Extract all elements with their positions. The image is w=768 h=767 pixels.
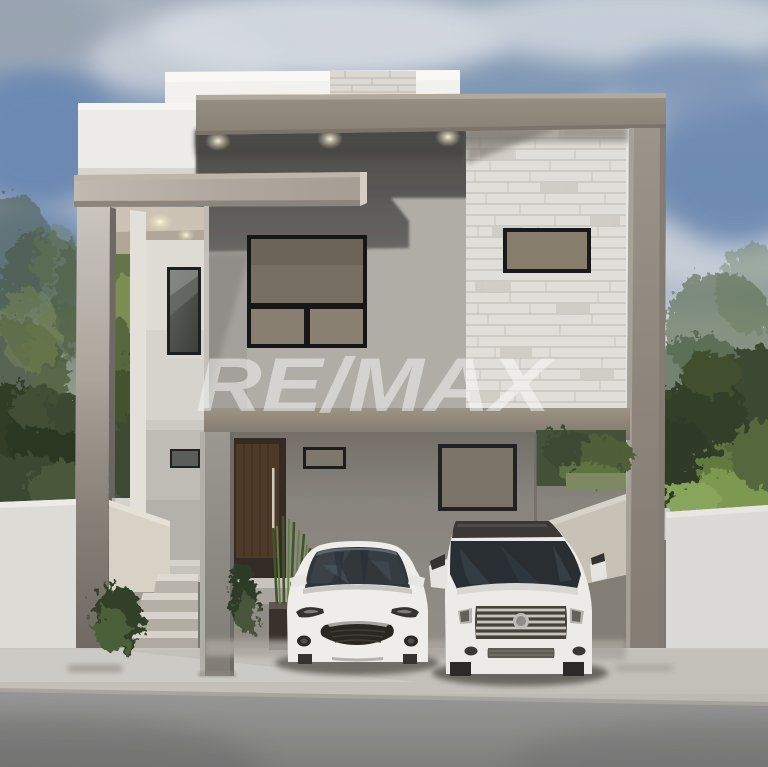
svg-text:RE/MAX: RE/MAX (196, 342, 556, 427)
